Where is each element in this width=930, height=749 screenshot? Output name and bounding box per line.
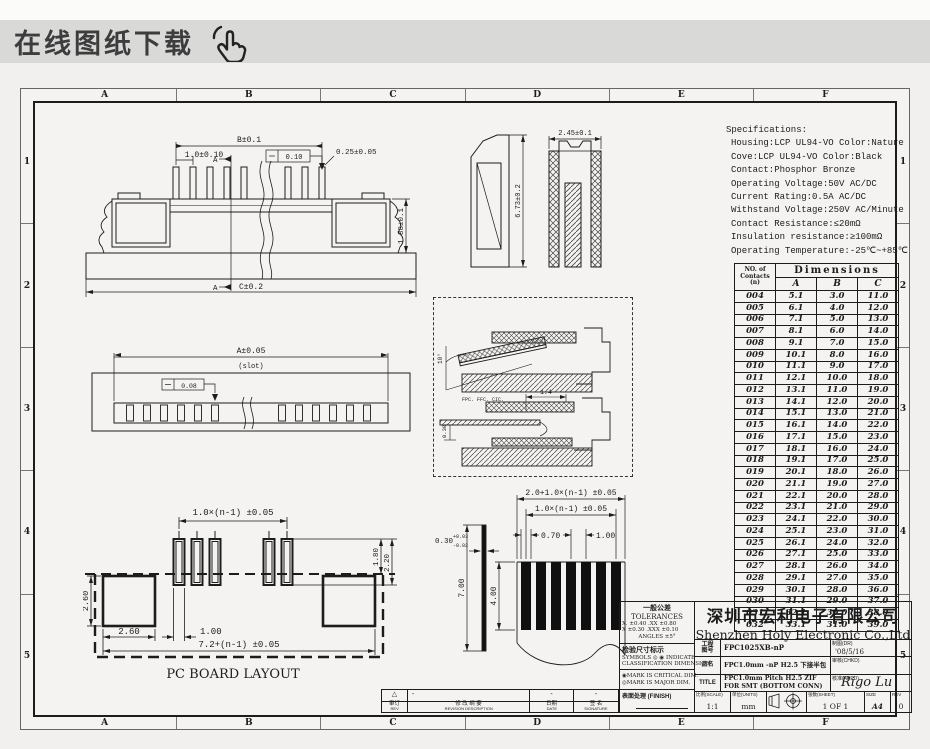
specification-line: Operating Voltage:50V AC/DC bbox=[726, 178, 916, 191]
section-label-bottom: A bbox=[213, 285, 218, 293]
svg-text:1.88±0.1: 1.88±0.1 bbox=[398, 208, 406, 245]
table-row: 01314.112.020.0 bbox=[735, 396, 899, 408]
specifications-lines: Housing:LCP UL94-VO Color:NatureCove:LCP… bbox=[726, 137, 916, 258]
dimensions-table: NO. ofContacts(n) Dimensions A B C 0045.… bbox=[734, 263, 899, 632]
drawing-number-value: FPC1025XB-nP bbox=[721, 640, 830, 656]
table-row: 01617.115.023.0 bbox=[735, 432, 899, 444]
svg-text:1.0±0.10: 1.0±0.10 bbox=[185, 151, 224, 160]
table-row: 02728.126.034.0 bbox=[735, 561, 899, 573]
zone-labels-bottom: ABCDEF bbox=[33, 717, 897, 729]
fpc-cable-drawing: 2.0+1.0×(n-1) ±0.05 1.0×(n-1) ±0.05 0.70… bbox=[429, 485, 649, 677]
svg-text:1.00: 1.00 bbox=[200, 627, 222, 637]
zone-label: A bbox=[33, 717, 177, 729]
pcb-layout-drawing: 1.0×(n-1) ±0.05 2.60 2.60 1.00 7.2+(n-1)… bbox=[83, 477, 398, 684]
revision-mark: △ bbox=[382, 690, 408, 701]
drawn-by-cell: 制图(DR) '08/5/16 bbox=[831, 640, 911, 657]
svg-text:4.00: 4.00 bbox=[490, 586, 499, 605]
part-name-label: 品名 bbox=[695, 657, 721, 673]
svg-text:FPC. FFC. CIC.: FPC. FFC. CIC. bbox=[462, 397, 504, 403]
drawn-date: '08/5/16 bbox=[835, 648, 864, 656]
table-row: 02324.122.030.0 bbox=[735, 514, 899, 526]
svg-text:2.0+1.0×(n-1) ±0.05: 2.0+1.0×(n-1) ±0.05 bbox=[525, 489, 616, 498]
detail-section-box: 10° 1.4 0.30 FPC. FFC. CIC. bbox=[433, 297, 633, 477]
zone-label: 2 bbox=[21, 224, 33, 347]
specification-line: Cove:LCP UL94-VO Color:Black bbox=[726, 151, 916, 164]
units-cell: 单位(UNITS)mm bbox=[731, 692, 767, 712]
specification-line: Current Rating:0.5A AC/DC bbox=[726, 191, 916, 204]
table-row: 0056.14.012.0 bbox=[735, 302, 899, 314]
front-view-drawing: B±0.1 1.0±0.10 0.10 0.25±0.05 1.88±0.1 C… bbox=[76, 129, 426, 305]
revision-col-header: 审订REV bbox=[382, 702, 408, 713]
svg-text:C±0.2: C±0.2 bbox=[239, 283, 263, 292]
svg-text:1.4: 1.4 bbox=[540, 389, 552, 396]
zone-label: D bbox=[466, 89, 610, 101]
table-row: 01112.110.018.0 bbox=[735, 373, 899, 385]
table-row: 01516.114.022.0 bbox=[735, 420, 899, 432]
column-header-b: B bbox=[817, 278, 858, 291]
svg-text:7.2+(n-1) ±0.05: 7.2+(n-1) ±0.05 bbox=[198, 640, 279, 650]
top-strip bbox=[0, 0, 930, 20]
tolerance-line: ANGLES ±5° bbox=[622, 634, 692, 640]
third-angle-projection-icon bbox=[767, 692, 805, 710]
table-row: 01920.118.026.0 bbox=[735, 467, 899, 479]
title-block: 一般公差 TOLERANCES X. ±0.40 .XX ±0.80 X ±0.… bbox=[619, 601, 912, 713]
svg-text:-0.02: -0.02 bbox=[453, 543, 468, 549]
company-header: 深圳市宏利电子有限公司 Shenzhen Holy Electronic Co.… bbox=[695, 602, 911, 640]
svg-text:2.60: 2.60 bbox=[118, 627, 140, 637]
symbols-line: CLASSIFICATION DIMENSION bbox=[622, 661, 692, 667]
pcb-layout-caption: PC BOARD LAYOUT bbox=[166, 667, 300, 682]
table-row: 0067.15.013.0 bbox=[735, 314, 899, 326]
table-row: 02122.120.028.0 bbox=[735, 490, 899, 502]
table-row: 02021.119.027.0 bbox=[735, 479, 899, 491]
svg-text:2.45±0.1: 2.45±0.1 bbox=[558, 130, 592, 138]
revision-col-header: 日期DATE bbox=[530, 702, 574, 713]
zone-label: B bbox=[177, 89, 321, 101]
revision-signature-value: - bbox=[574, 690, 618, 701]
svg-text:2.20: 2.20 bbox=[384, 554, 392, 573]
specification-line: Contact:Phosphor Bronze bbox=[726, 164, 916, 177]
svg-text:1.80: 1.80 bbox=[373, 548, 381, 567]
tolerance-title-cn: 一般公差 bbox=[622, 603, 692, 613]
specification-line: Housing:LCP UL94-VO Color:Nature bbox=[726, 137, 916, 150]
table-row: 01819.117.025.0 bbox=[735, 455, 899, 467]
svg-text:+0.03: +0.03 bbox=[453, 534, 468, 540]
zone-label: B bbox=[177, 717, 321, 729]
svg-text:7.00: 7.00 bbox=[458, 578, 467, 597]
table-row: 01415.113.021.0 bbox=[735, 408, 899, 420]
hand-pointer-icon bbox=[204, 22, 250, 62]
svg-text:6.73±0.2: 6.73±0.2 bbox=[515, 184, 523, 218]
svg-text:B±0.1: B±0.1 bbox=[237, 136, 261, 145]
sheet-count-cell: 张数(SHEET)1 OF 1 bbox=[807, 692, 865, 712]
bottom-view-drawing: A±0.05 (slot) 0.08 bbox=[86, 343, 416, 449]
zone-label: 5 bbox=[21, 595, 33, 717]
download-banner-link[interactable]: 在线图纸下载 bbox=[0, 20, 930, 63]
approved-by-cell: 核准(APPD) Rigo Lu bbox=[831, 675, 911, 691]
table-row: 01718.116.024.0 bbox=[735, 443, 899, 455]
page: 在线图纸下载 ABCDEF ABCDEF 12345 12345 bbox=[0, 0, 930, 749]
zone-labels-top: ABCDEF bbox=[33, 89, 897, 101]
table-row: 02627.125.033.0 bbox=[735, 549, 899, 561]
tolerance-block: 一般公差 TOLERANCES X. ±0.40 .XX ±0.80 X ±0.… bbox=[620, 602, 695, 712]
part-name-value: FPC1.0mm -nP H2.5 下接半包 bbox=[721, 657, 830, 673]
rev-cell: REV0 bbox=[891, 692, 911, 712]
table-row: 02425.123.031.0 bbox=[735, 526, 899, 538]
major-dim-note: ◎MARK IS MAJOR DIM. bbox=[622, 680, 692, 686]
table-row: 01011.19.017.0 bbox=[735, 361, 899, 373]
zone-label: F bbox=[754, 89, 897, 101]
zone-label: C bbox=[321, 89, 465, 101]
zone-label: 1 bbox=[21, 101, 33, 224]
table-row: 0078.16.014.0 bbox=[735, 326, 899, 338]
table-row: 00910.18.016.0 bbox=[735, 349, 899, 361]
specification-line: Operating Temperature:-25℃~+85℃ bbox=[726, 245, 916, 258]
svg-text:1.00: 1.00 bbox=[596, 532, 615, 541]
revision-description-value: - bbox=[408, 690, 530, 701]
specification-line: Insulation resistance:≥100mΩ bbox=[726, 231, 916, 244]
revision-date-value: - bbox=[530, 690, 574, 701]
finish-label: 表面处理 (FINISH) bbox=[622, 691, 692, 700]
svg-text:0.30: 0.30 bbox=[441, 425, 448, 438]
svg-text:A±0.05: A±0.05 bbox=[237, 347, 266, 356]
projection-symbol-cell bbox=[767, 692, 807, 712]
svg-text:0.30: 0.30 bbox=[435, 538, 454, 546]
zone-label: E bbox=[610, 89, 754, 101]
zone-label: 4 bbox=[21, 471, 33, 594]
detail-section-drawing: 10° 1.4 0.30 FPC. FFC. CIC. bbox=[434, 298, 631, 475]
section-label-top: A bbox=[213, 157, 218, 165]
revision-col-header: 签 名SIGNATURE bbox=[574, 702, 618, 713]
size-cell: SIZEA4 bbox=[865, 692, 891, 712]
svg-text:1.0×(n-1) ±0.05: 1.0×(n-1) ±0.05 bbox=[535, 505, 607, 514]
svg-text:0.70: 0.70 bbox=[541, 532, 560, 541]
revision-strip: △ - - - 审订REV 修 改 纲 要REVISION DESCRIPTIO… bbox=[381, 689, 619, 713]
specifications-title: Specifications: bbox=[726, 124, 916, 137]
company-name-cn: 深圳市宏利电子有限公司 bbox=[695, 603, 911, 627]
checked-by-cell: 审核(CHKD) bbox=[831, 657, 911, 674]
table-row: 0089.17.015.0 bbox=[735, 338, 899, 350]
contacts-column-header: NO. ofContacts(n) bbox=[735, 264, 776, 291]
zone-labels-left: 12345 bbox=[21, 101, 33, 717]
svg-text:2.60: 2.60 bbox=[83, 591, 91, 611]
finish-underline bbox=[636, 708, 688, 709]
svg-text:10°: 10° bbox=[437, 353, 444, 364]
tolerance-title-en: TOLERANCES bbox=[622, 613, 692, 621]
zone-label: E bbox=[610, 717, 754, 729]
specifications-block: Specifications: Housing:LCP UL94-VO Colo… bbox=[726, 124, 916, 258]
zone-label: A bbox=[33, 89, 177, 101]
table-row: 02223.121.029.0 bbox=[735, 502, 899, 514]
zone-label: 3 bbox=[21, 348, 33, 471]
svg-text:0.08: 0.08 bbox=[181, 383, 197, 390]
drawing-number-label: 工程图号 bbox=[695, 640, 721, 656]
dimensions-group-header: Dimensions bbox=[776, 264, 899, 278]
column-header-c: C bbox=[858, 278, 899, 291]
zone-label: C bbox=[321, 717, 465, 729]
column-header-a: A bbox=[776, 278, 817, 291]
revision-col-header: 修 改 纲 要REVISION DESCRIPTION bbox=[408, 702, 530, 713]
scale-cell: 比例(SCALE)1:1 bbox=[695, 692, 731, 712]
table-row: 02930.128.036.0 bbox=[735, 584, 899, 596]
table-row: 02526.124.032.0 bbox=[735, 537, 899, 549]
inspection-title: 检验尺寸标示 bbox=[622, 645, 692, 655]
table-row: 01213.111.019.0 bbox=[735, 385, 899, 397]
table-row: 0045.13.011.0 bbox=[735, 291, 899, 303]
title-label: TITLE bbox=[695, 675, 721, 691]
specification-line: Withstand Voltage:250V AC/Minute bbox=[726, 204, 916, 217]
svg-text:0.25±0.05: 0.25±0.05 bbox=[336, 149, 377, 157]
approver-signature: Rigo Lu bbox=[841, 675, 892, 690]
drawing-sheet: ABCDEF ABCDEF 12345 12345 bbox=[20, 88, 910, 730]
zone-label: D bbox=[466, 717, 610, 729]
side-section-views: 6.73±0.2 2.45±0.1 bbox=[451, 127, 611, 277]
table-row: 02829.127.035.0 bbox=[735, 573, 899, 585]
svg-text:(slot): (slot) bbox=[238, 363, 263, 371]
svg-text:1.0×(n-1) ±0.05: 1.0×(n-1) ±0.05 bbox=[192, 508, 273, 518]
svg-text:0.10: 0.10 bbox=[286, 154, 303, 162]
specification-line: Contact Resistance:≤20mΩ bbox=[726, 218, 916, 231]
title-value: FPC1.0mm Pitch H2.5 ZIFFOR SMT (BOTTOM C… bbox=[721, 675, 830, 691]
zone-label: F bbox=[754, 717, 897, 729]
banner-title: 在线图纸下载 bbox=[14, 22, 194, 61]
